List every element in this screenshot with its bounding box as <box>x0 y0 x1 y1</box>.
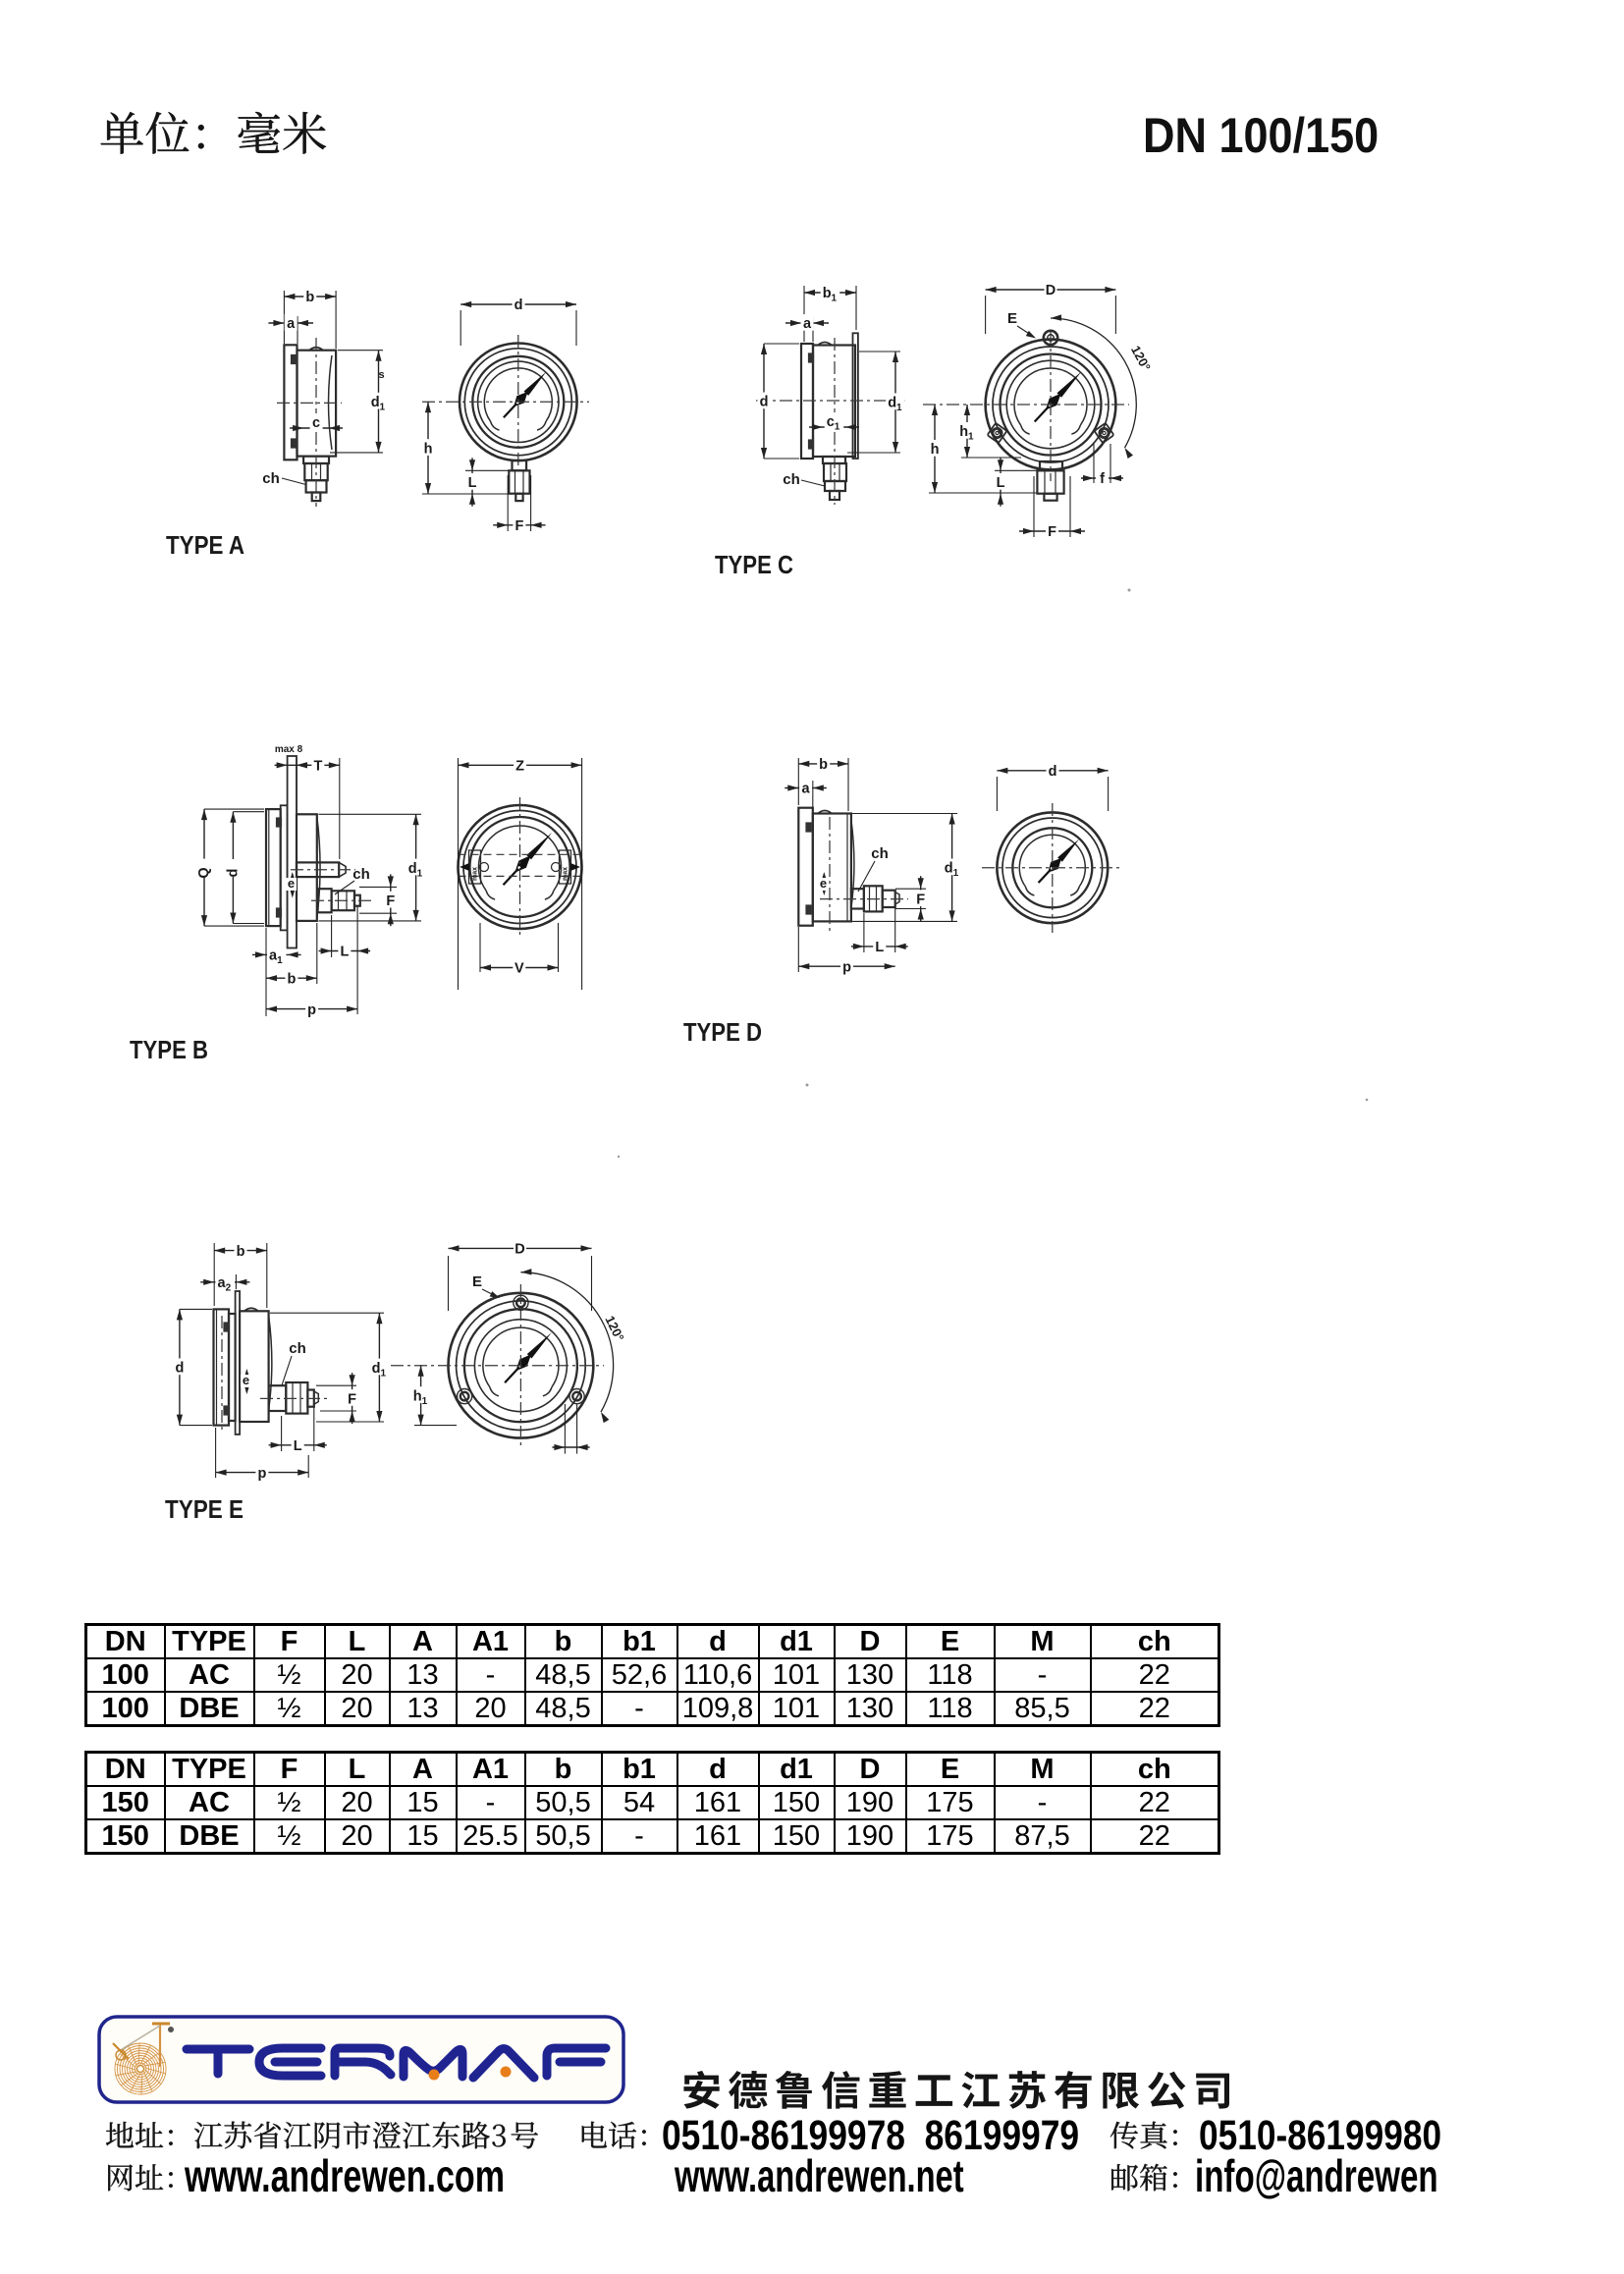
svg-text:V: V <box>514 961 524 977</box>
svg-text:b: b <box>305 290 314 305</box>
svg-text:d: d <box>760 395 769 410</box>
svg-text:F: F <box>386 893 395 909</box>
svg-text:L: L <box>875 940 884 955</box>
svg-text:L: L <box>294 1438 302 1454</box>
svg-text:F: F <box>514 518 523 534</box>
svg-text:d: d <box>1049 764 1057 780</box>
svg-text:TYPE B: TYPE B <box>130 1035 208 1064</box>
svg-text:max 8: max 8 <box>275 744 303 755</box>
svg-text:L: L <box>340 945 349 960</box>
svg-text:d: d <box>514 298 523 313</box>
svg-text:TYPE C: TYPE C <box>715 550 793 579</box>
svg-text:ch: ch <box>871 845 889 862</box>
svg-text:p: p <box>842 959 851 975</box>
svg-text:a: a <box>287 316 296 332</box>
svg-text:ch: ch <box>352 866 370 883</box>
svg-text:ch: ch <box>783 471 800 488</box>
svg-text:e: e <box>820 876 827 891</box>
svg-text:L: L <box>468 475 477 491</box>
svg-text:D: D <box>1046 283 1056 298</box>
svg-text:ch: ch <box>289 1340 306 1357</box>
svg-text:b: b <box>287 971 296 987</box>
svg-text:L: L <box>997 475 1005 491</box>
svg-text:D: D <box>514 1242 524 1258</box>
svg-text:p: p <box>257 1466 266 1482</box>
svg-text:b: b <box>819 757 828 773</box>
svg-text:d: d <box>175 1361 184 1377</box>
svg-text:d: d <box>226 869 242 878</box>
svg-text:F: F <box>348 1391 356 1407</box>
svg-text:F: F <box>1048 524 1056 540</box>
svg-text:TYPE D: TYPE D <box>683 1017 762 1047</box>
svg-text:T: T <box>313 759 322 775</box>
svg-text:max: max <box>563 867 569 881</box>
svg-text:b: b <box>237 1244 245 1260</box>
svg-text:f: f <box>1100 471 1105 487</box>
svg-text:max: max <box>472 867 479 881</box>
svg-text:a: a <box>801 782 810 797</box>
svg-text:a: a <box>803 316 812 332</box>
svg-text:F: F <box>916 893 925 908</box>
svg-text:TYPE A: TYPE A <box>166 530 244 560</box>
svg-text:TYPE E: TYPE E <box>165 1494 244 1524</box>
svg-text:e: e <box>243 1373 249 1387</box>
svg-text:ch: ch <box>262 470 280 487</box>
svg-text:s: s <box>378 369 384 381</box>
svg-text:p: p <box>307 1002 316 1018</box>
svg-text:h: h <box>424 441 433 457</box>
svg-text:120°: 120° <box>1128 343 1154 373</box>
svg-text:h: h <box>931 442 940 458</box>
svg-text:Q: Q <box>196 867 212 878</box>
svg-text:c: c <box>312 415 320 431</box>
svg-text:E: E <box>472 1273 482 1290</box>
svg-text:E: E <box>1007 310 1017 327</box>
svg-text:e: e <box>288 876 295 891</box>
svg-text:Z: Z <box>515 759 524 775</box>
